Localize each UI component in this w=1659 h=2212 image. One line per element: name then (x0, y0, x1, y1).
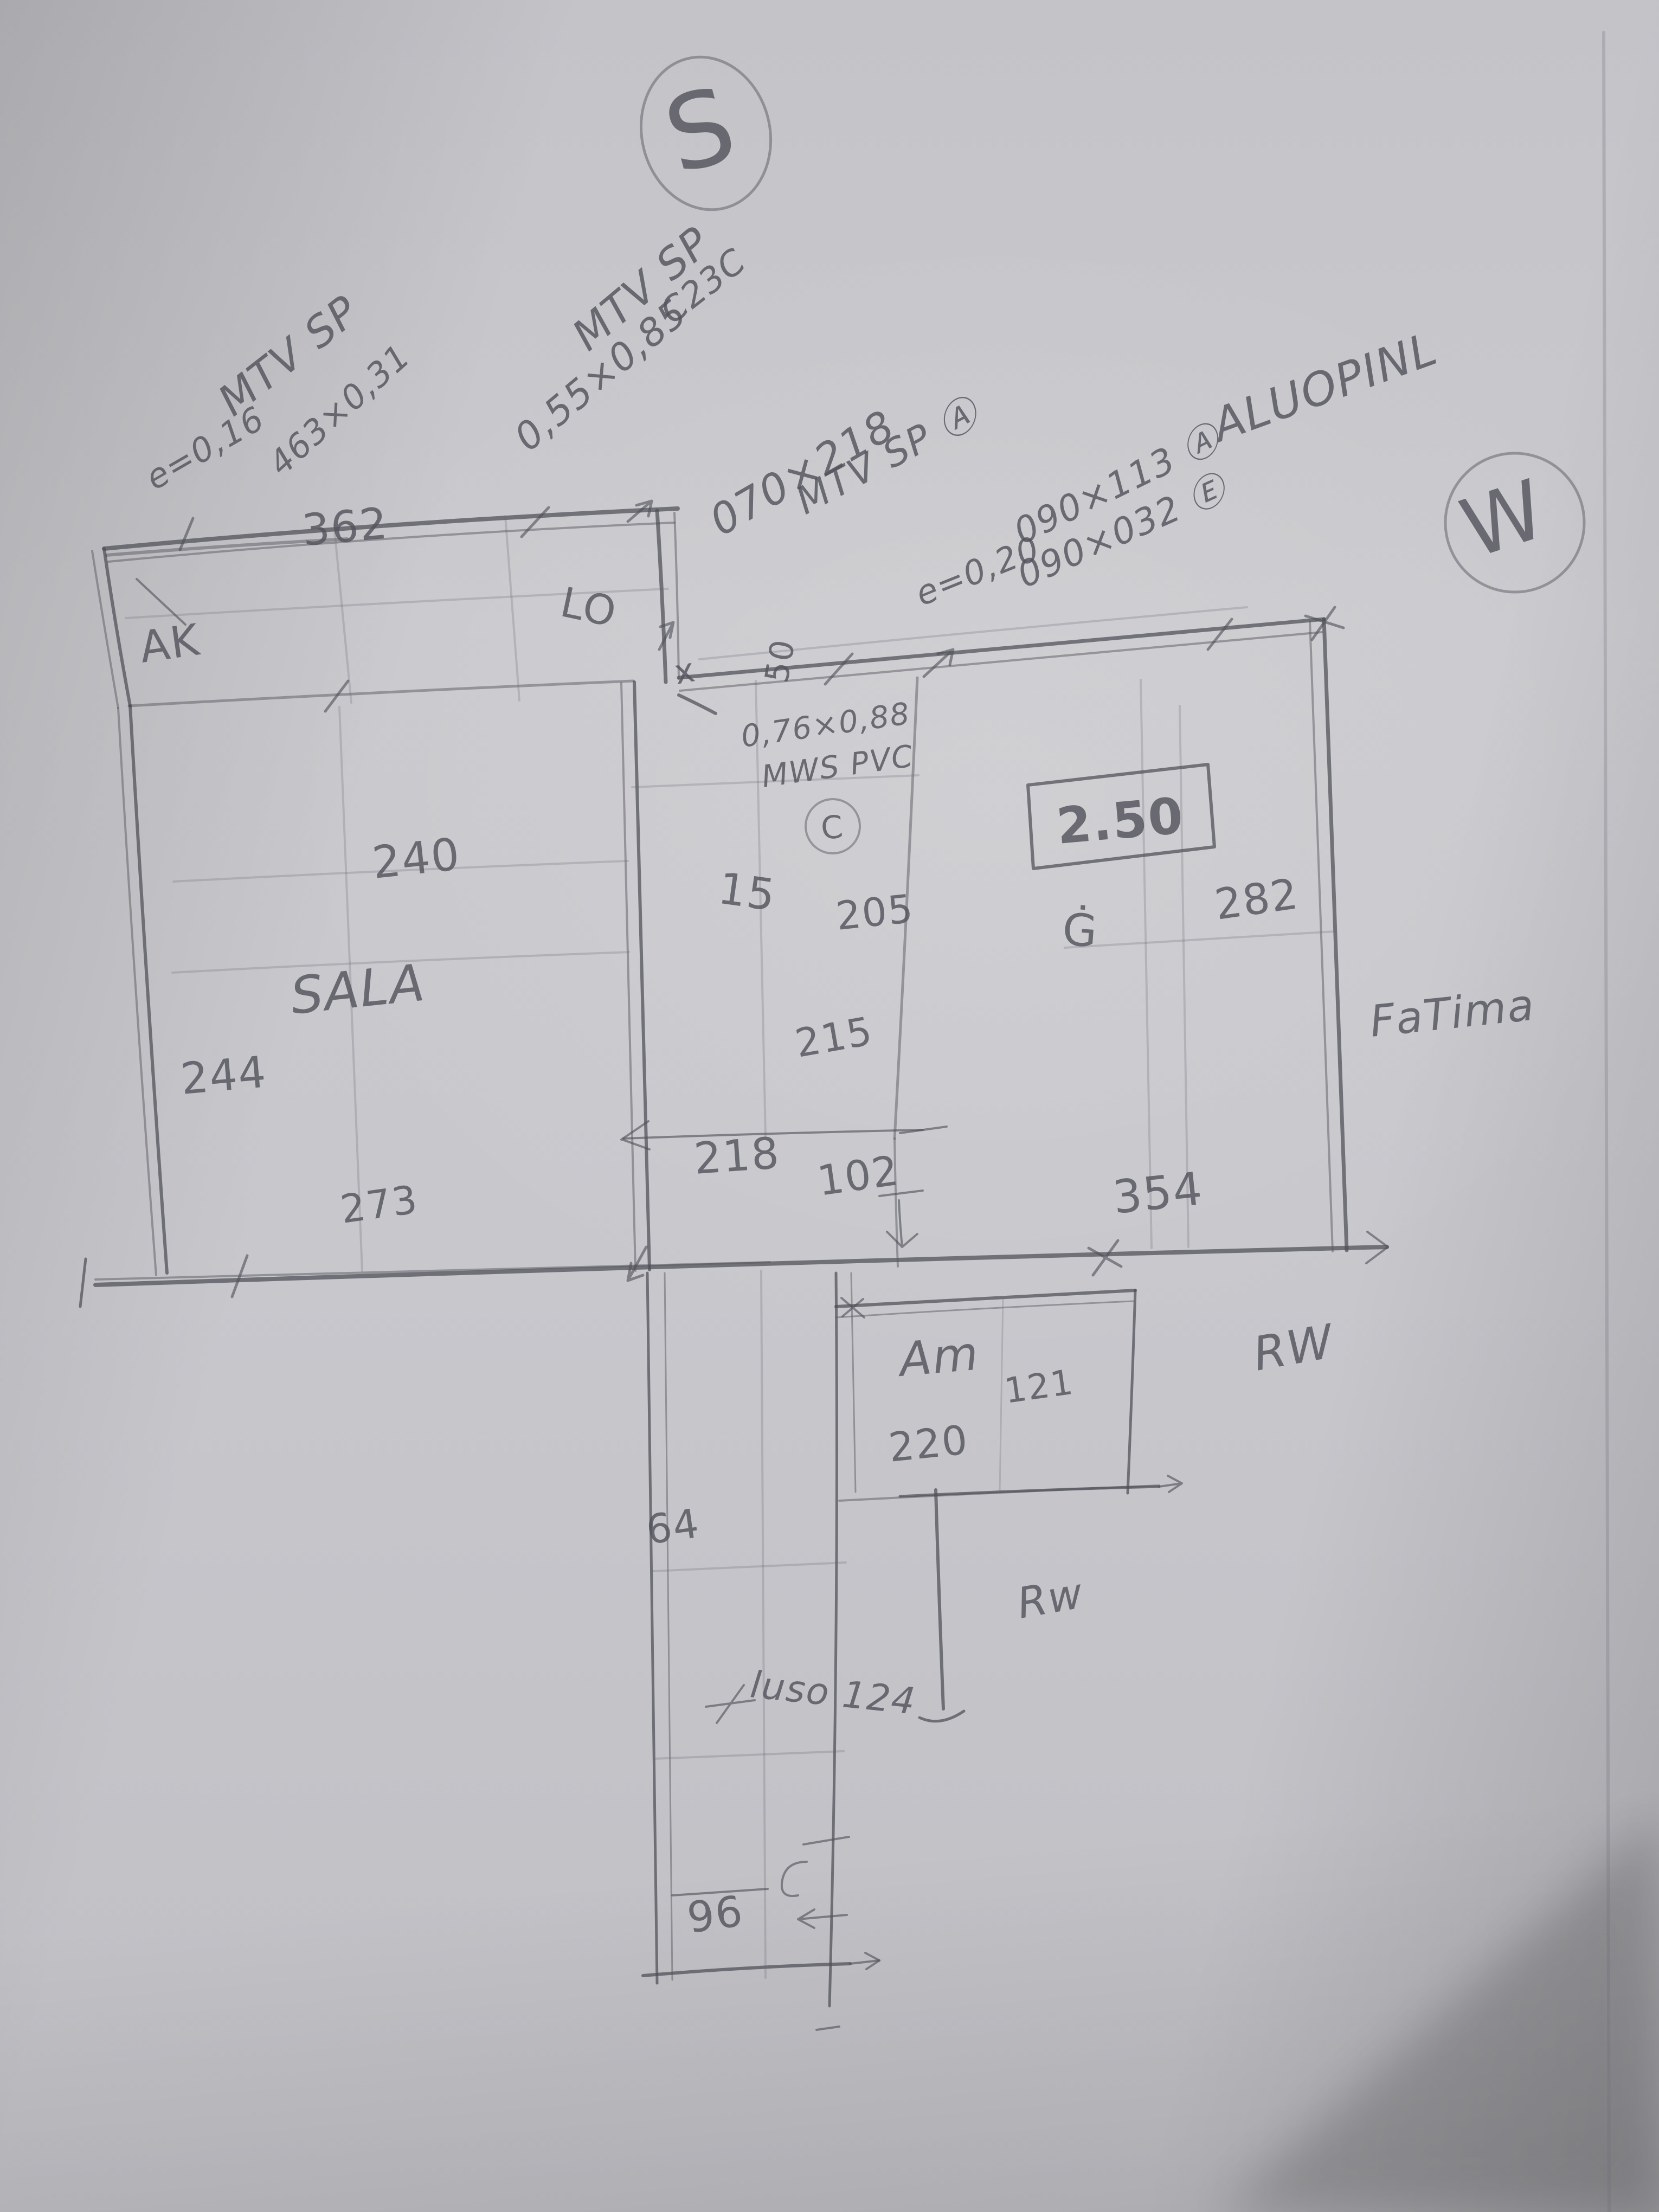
dim-215: 215 (792, 1008, 876, 1066)
dim-282: 282 (1212, 870, 1302, 930)
cross-corridor-right-top (803, 1837, 849, 1844)
arrow-102 (887, 1200, 917, 1247)
label-ak: AK (137, 614, 204, 673)
dim-205: 205 (834, 885, 916, 939)
wall-bottomroom-right (1128, 1290, 1135, 1493)
note-nw-line2: e=0,16 (139, 398, 271, 498)
wall-strip-left-inner (92, 551, 118, 708)
wall-bottom-main-overdraw (95, 1262, 770, 1279)
guide-v-rightroom1 (1141, 680, 1152, 1248)
label-luso: luso 124 (748, 1663, 918, 1724)
arrow-junction (659, 622, 673, 650)
floor-plan-sketch: S W MTV SP e=0,16 463×0,31 MTV SP 0,55×0… (0, 0, 1659, 2212)
tick-strip-top-1 (180, 518, 193, 550)
tick-strip-top-2 (522, 507, 549, 537)
dim-273: 273 (338, 1176, 421, 1232)
wall-bottom-main (95, 1247, 1387, 1285)
dim-102: 102 (814, 1146, 902, 1205)
guide-h-corridor1 (653, 1562, 846, 1571)
dim-244: 244 (179, 1046, 269, 1104)
wall-corridor-right (829, 1273, 837, 2006)
hook-96 (782, 1862, 807, 1896)
label-lo: LO (556, 578, 621, 637)
wall-right (1324, 619, 1347, 1250)
construction-guides (126, 516, 1335, 1978)
label-fatima: FaTima (1367, 980, 1537, 1047)
speck-1 (1375, 1766, 1381, 1771)
wall-stub-foot (919, 1711, 964, 1721)
wall-stub-vertical (936, 1490, 943, 1709)
wall-strip-bottom (129, 681, 633, 706)
boxed-height: 2.50 (1054, 787, 1186, 856)
label-sala: SALA (288, 953, 428, 1026)
tick-rsec-2 (1208, 619, 1232, 650)
cross-bottom-354 (1089, 1240, 1121, 1275)
dim-15: 15 (715, 863, 779, 921)
guide-h-corridor2 (654, 1751, 844, 1759)
dim-96: 96 (684, 1887, 747, 1943)
arrow-bottomroom-right (1159, 1476, 1182, 1492)
dim-50: 50 (758, 636, 803, 685)
wall-bottomroom-top (836, 1290, 1135, 1307)
wall-corridor-bottom (643, 1964, 850, 1976)
note-ne-material: ALUOPINL (1203, 322, 1444, 453)
guide-v-corridor-center (761, 1271, 766, 1978)
compass-west-label: W (1450, 462, 1557, 577)
wall-bottomleft-endtick (80, 1259, 86, 1307)
tick-rsec-1 (825, 654, 852, 684)
wall-corridor-left-inner (665, 1273, 672, 1980)
label-g-mark: Ġ (1061, 903, 1100, 957)
arrow-96-lower (798, 1909, 847, 1928)
dim-218: 218 (692, 1128, 782, 1184)
dim-121: 121 (1002, 1362, 1076, 1412)
guide-h-rightroom (1065, 931, 1335, 948)
tick-corridor-below (816, 2027, 839, 2030)
dim-64: 64 (644, 1500, 703, 1554)
label-am: Am (895, 1327, 981, 1388)
dim-354: 354 (1110, 1162, 1206, 1224)
arrow-bottom-junction (628, 1247, 646, 1281)
wall-bottomroom-bottom-heavy (900, 1487, 1159, 1496)
wall-corridor-left (647, 1273, 657, 1983)
stub-junction (679, 695, 716, 713)
label-x-tick: x (671, 650, 699, 692)
guide-v-strip2 (505, 516, 519, 700)
cross-corridor-mid (706, 1685, 755, 1723)
label-rw-lower: Rw (1014, 1569, 1088, 1629)
wall-strip-right (657, 511, 666, 682)
wall-middle-vertical (634, 682, 650, 1270)
handwriting: S W MTV SP e=0,16 463×0,31 MTV SP 0,55×0… (137, 64, 1557, 1943)
corner-shadow (1220, 1816, 1659, 2212)
walls (80, 509, 1387, 2006)
label-rw-upper: RW (1249, 1314, 1339, 1381)
wall-middle-vertical-inner (621, 683, 635, 1271)
wall-left-inner (118, 708, 156, 1275)
compass-south-label: S (653, 64, 748, 197)
dim-362: 362 (300, 498, 390, 555)
dim-220: 220 (886, 1417, 970, 1471)
guide-v-bottomroom-divider (1000, 1299, 1003, 1492)
dim-240: 240 (370, 828, 463, 889)
note-mid-badge: C (819, 808, 845, 847)
wall-strip-left (104, 549, 130, 706)
